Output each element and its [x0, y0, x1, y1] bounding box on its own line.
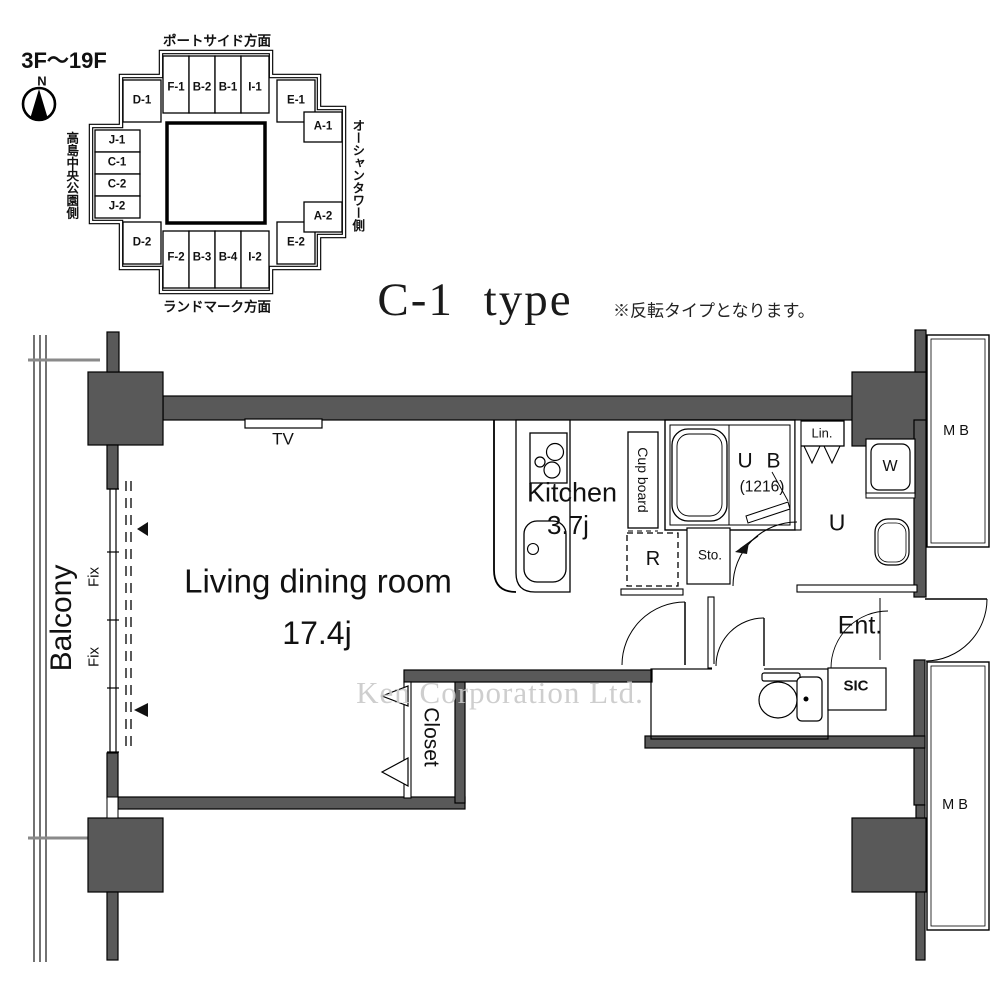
refrigerator-label: R [646, 549, 660, 569]
direction-label-right: オーシャンタワー側 [351, 119, 364, 232]
folding-door-icon [382, 758, 408, 786]
meter-box-label-bottom: M B [942, 798, 968, 813]
toilet-icon [759, 673, 822, 721]
watermark: Ken Corporation Ltd. [356, 675, 644, 711]
tv-outlet [245, 419, 322, 428]
living-room-size: 17.4j [282, 617, 351, 649]
fix-window-label-2: Fix [87, 647, 102, 667]
entrance-door-arc [926, 599, 987, 661]
locator-courtyard [167, 123, 265, 223]
wall-stub [107, 445, 118, 489]
door-swing-arrow-icon [735, 542, 749, 554]
floorplan-page: 3F〜19F N ポートサイド方面 ランドマーク方面 高島中央公園側 オーシャン… [0, 0, 1000, 1000]
wall-toilet-bottom [645, 736, 925, 748]
window-marker-icon [134, 522, 148, 717]
wall-right-upper [914, 420, 926, 597]
washroom-bottom-wall [797, 585, 917, 592]
hall-door-arc [622, 602, 685, 665]
tv-label: TV [272, 431, 294, 448]
ldk-hall-door [622, 602, 685, 665]
wall-top [163, 396, 853, 420]
entry [880, 598, 987, 661]
unit-label-j2: J-2 [109, 201, 126, 213]
toilet-door-arc [716, 618, 764, 666]
plan-type-title: C-1 type [377, 273, 572, 327]
unit-label-f2: F-2 [167, 252, 184, 264]
unit-label-d1: D-1 [133, 95, 152, 107]
sic-label: SIC [843, 679, 868, 694]
washroom-label: U [829, 512, 846, 535]
fix-window-label-1: Fix [87, 567, 102, 587]
unit-label-a2: A-2 [314, 211, 333, 223]
meter-box-label-top: M B [943, 424, 969, 439]
wall-stub [916, 805, 925, 818]
kitchen-size: 3.7j [547, 512, 589, 538]
unit-label-a1: A-1 [314, 121, 333, 133]
washroom-door-arc [733, 522, 797, 586]
unit-bath-label: U B [737, 451, 784, 472]
washer-label: W [882, 459, 897, 475]
unit-bath [665, 420, 795, 530]
storage-label: Sto. [698, 548, 722, 562]
living-room-label: Living dining room [184, 565, 452, 598]
wall-bottom-living [118, 797, 465, 809]
unit-label-b2: B-2 [193, 82, 212, 94]
wall-stub [107, 332, 119, 372]
pillar-top-left [88, 372, 163, 445]
unit-label-i1: I-1 [248, 82, 261, 94]
wall-stub [916, 892, 925, 960]
balcony-label: Balcony [47, 565, 77, 672]
kitchen-partition-wall [494, 420, 516, 592]
unit-label-b4: B-4 [219, 252, 238, 264]
wall-stub [107, 753, 118, 798]
wall-right-mid [914, 660, 925, 805]
unit-label-d2: D-2 [133, 237, 152, 249]
entrance-label: Ent. [838, 614, 882, 639]
plan-type-note: ※反転タイプとなります。 [613, 297, 815, 322]
curtain-dashed-lines [126, 481, 131, 752]
compass-north-label: N [37, 75, 46, 88]
compass-icon [23, 88, 55, 120]
unit-label-e1: E-1 [287, 95, 305, 107]
direction-label-left: 高島中央公園側 [65, 131, 78, 219]
bifold-door-icon [804, 446, 840, 463]
kitchen-label: Kitchen [527, 480, 617, 507]
unit-label-c2: C-2 [108, 179, 127, 191]
unit-label-c1: C-1 [108, 157, 127, 169]
direction-label-bottom: ランドマーク方面 [163, 300, 271, 314]
wall-stub [915, 330, 926, 372]
pillar-bottom-left [88, 818, 163, 892]
unit-bath-size: (1216) [740, 479, 785, 495]
unit-label-e2: E-2 [287, 237, 305, 249]
unit-label-b3: B-3 [193, 252, 212, 264]
linen-label: Lin. [812, 427, 833, 440]
hall-ent-divider [708, 597, 714, 668]
washroom-door [733, 522, 797, 586]
pillar-bottom-right [852, 818, 926, 892]
unit-label-f1: F-1 [167, 82, 184, 94]
unit-label-i2: I-2 [248, 252, 261, 264]
fix-window [107, 489, 119, 753]
wall-stub [107, 892, 118, 960]
unit-label-j1: J-1 [109, 135, 126, 147]
closet-label: Closet [421, 707, 442, 767]
floorplan-drawing [0, 0, 1000, 1000]
direction-label-top: ポートサイド方面 [163, 34, 271, 48]
washroom-left-wall [795, 420, 801, 530]
cupboard-label: Cup board [636, 447, 650, 512]
wall-connector [107, 797, 118, 818]
unit-label-b1: B-1 [219, 82, 238, 94]
floor-range-label: 3F〜19F [21, 50, 107, 72]
